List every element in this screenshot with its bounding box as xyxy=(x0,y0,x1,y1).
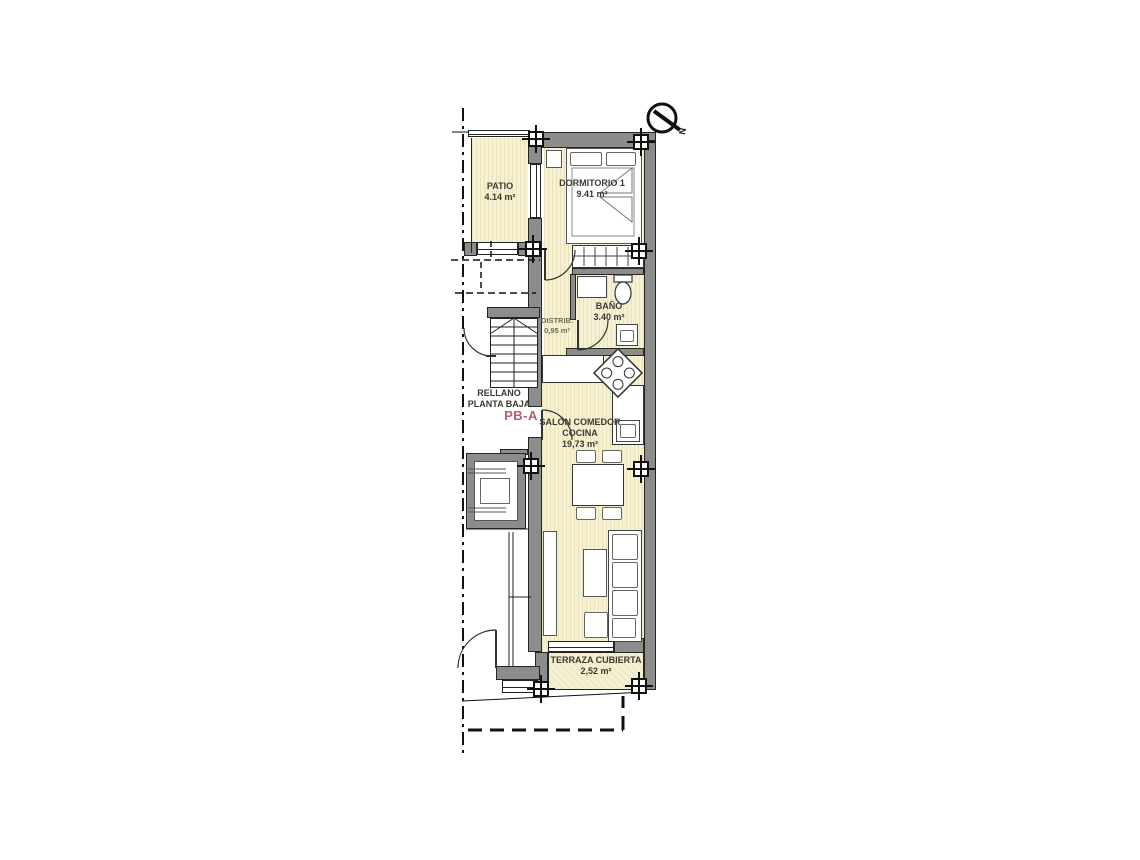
sofa-cushion xyxy=(612,618,636,638)
patio-left-line xyxy=(471,138,472,253)
label-distrib: DISTRIB. 0,95 m² xyxy=(541,316,573,336)
north-arrow-icon: N xyxy=(648,104,688,135)
column-marker xyxy=(523,458,539,474)
room-area: 4.14 m² xyxy=(484,192,515,202)
tv-cabinet xyxy=(543,531,557,636)
column-marker xyxy=(533,681,549,697)
sofa-cushion xyxy=(612,534,638,560)
wall-distrib-bath xyxy=(570,274,576,320)
wall-stair-top xyxy=(487,307,540,318)
washbasin-counter xyxy=(577,276,607,298)
label-bedroom: DORMITORIO 1 9.41 m² xyxy=(559,178,625,200)
column-marker xyxy=(631,243,647,259)
room-name: SALÓN COMEDOR xyxy=(540,417,621,427)
stairs xyxy=(490,318,538,388)
room-area: 0,95 m² xyxy=(544,326,570,335)
unit-code: PB-A xyxy=(504,409,538,423)
sofa-cushion xyxy=(612,590,638,616)
room-area: 2,52 m² xyxy=(580,666,611,676)
room-name: PATIO xyxy=(487,181,513,191)
label-patio: PATIO 4.14 m² xyxy=(484,181,515,203)
shower-drain xyxy=(620,330,634,342)
chair xyxy=(602,450,622,463)
bedroom-patio-window xyxy=(530,164,541,218)
wall-right xyxy=(644,140,656,690)
room-area: 9.41 m² xyxy=(576,189,607,199)
north-label: N xyxy=(677,127,688,135)
column-marker xyxy=(631,678,647,694)
pillow-left xyxy=(570,152,602,166)
floor-plan: N xyxy=(0,0,1140,860)
label-landing: RELLANO PLANTA BAJA xyxy=(468,388,531,410)
column-marker xyxy=(525,241,541,257)
landing-door-arc xyxy=(464,328,492,356)
room-area: 3.40 m² xyxy=(593,312,624,322)
room-name: TERRAZA CUBIERTA xyxy=(551,655,642,665)
living-terrace-window xyxy=(548,641,614,652)
chair xyxy=(576,507,596,520)
pillow-right xyxy=(606,152,636,166)
label-bathroom: BAÑO 3.40 m² xyxy=(593,301,624,323)
room-name: DORMITORIO 1 xyxy=(559,178,625,188)
column-marker xyxy=(633,461,649,477)
nightstand xyxy=(546,150,562,168)
room-name2: COCINA xyxy=(562,428,598,438)
coffee-table xyxy=(583,549,607,597)
kitchen-sink-basin xyxy=(620,424,636,438)
kitchen-counter-top xyxy=(542,355,604,383)
sofa-cushion xyxy=(612,562,638,588)
room-name: DISTRIB. xyxy=(541,316,573,325)
chair xyxy=(602,507,622,520)
room-name: BAÑO xyxy=(596,301,623,311)
label-living: SALÓN COMEDOR COCINA 19,73 m² xyxy=(540,417,621,450)
patio-top-window xyxy=(468,130,530,137)
wall-bottom-left xyxy=(496,666,540,680)
wall-wardrobe-bath xyxy=(572,268,644,275)
pouf xyxy=(584,612,608,638)
column-marker xyxy=(633,134,649,150)
property-boundary-line xyxy=(462,108,464,757)
room-area: 19,73 m² xyxy=(562,439,598,449)
glazed-partition xyxy=(466,529,531,666)
patio-bottom-window xyxy=(477,242,518,255)
chair xyxy=(576,450,596,463)
landing-line1: RELLANO xyxy=(477,388,521,398)
dining-table xyxy=(572,464,624,506)
column-marker xyxy=(528,131,544,147)
label-terrace: TERRAZA CUBIERTA 2,52 m² xyxy=(551,655,642,677)
elevator-cab xyxy=(480,478,510,504)
